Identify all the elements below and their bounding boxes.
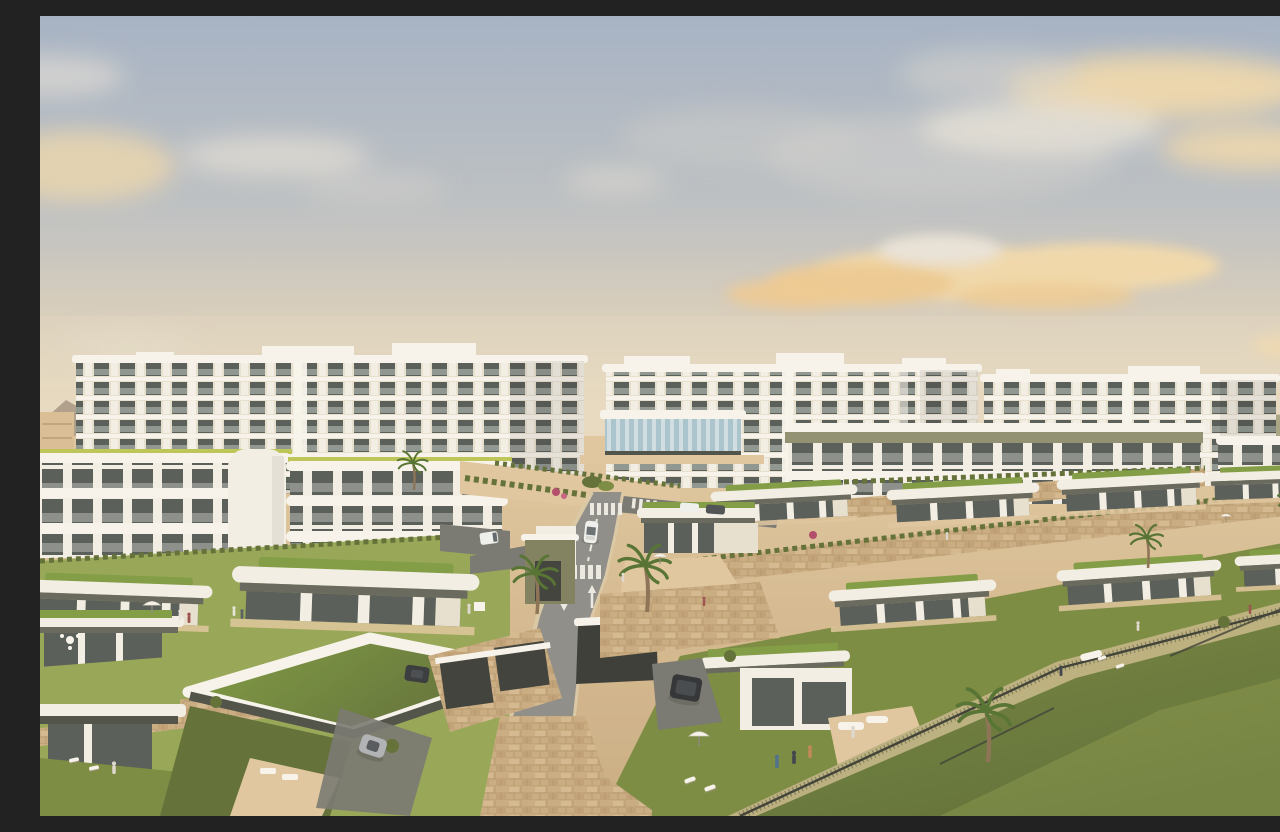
sunset-tint-overlay (40, 16, 1280, 816)
render-figure (40, 16, 1280, 816)
render-image (40, 16, 1280, 816)
